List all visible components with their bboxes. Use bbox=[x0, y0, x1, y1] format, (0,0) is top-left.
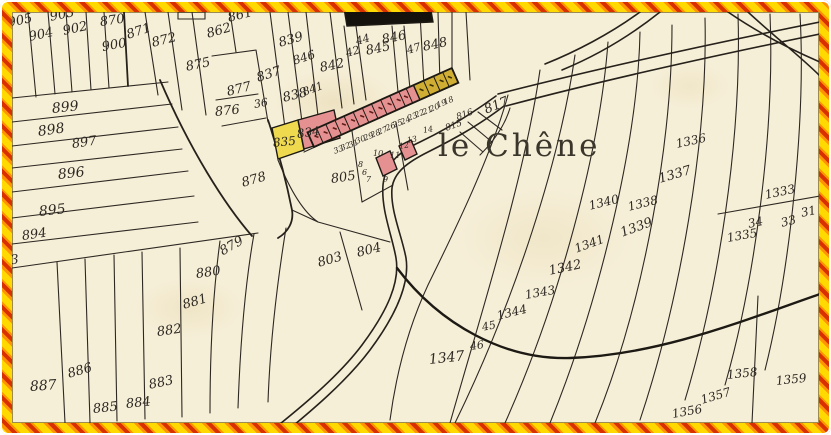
parcel-label: 11 bbox=[390, 152, 400, 160]
parcel-label: 882 bbox=[156, 323, 182, 339]
parcel-label: 36 bbox=[253, 97, 269, 110]
parcel-label: 805 bbox=[330, 170, 356, 186]
parcel-label: 1347 bbox=[428, 349, 465, 367]
parcel-label: 42 bbox=[344, 44, 360, 58]
map-paper: le Chêne 9059049039028709008718728758618… bbox=[12, 12, 819, 423]
parcel-label: 893 bbox=[12, 253, 19, 269]
major-boundaries-group bbox=[124, 12, 292, 238]
parcel-label: 876 bbox=[214, 103, 240, 119]
parcel-label: 880 bbox=[195, 265, 221, 281]
parcel-label: 896 bbox=[57, 165, 85, 182]
map-frame: le Chêne 9059049039028709008718728758618… bbox=[0, 0, 831, 435]
parcel-lines-left bbox=[12, 12, 268, 268]
parcel-label: 898 bbox=[37, 121, 65, 139]
parcel-label: 895 bbox=[38, 202, 66, 219]
parcel-label: 45 bbox=[481, 319, 497, 333]
parcel-label: 6 bbox=[362, 169, 367, 177]
parcel-label: 897 bbox=[71, 135, 97, 151]
parcel-label: 1359 bbox=[775, 372, 807, 387]
parcel-label: 31 bbox=[800, 204, 817, 219]
parcel-lines-group bbox=[12, 12, 819, 423]
parcel-label: 894 bbox=[21, 227, 47, 243]
parcel-label: 885 bbox=[92, 400, 118, 416]
cadastral-map-svg bbox=[12, 12, 819, 423]
parcel-label: 7 bbox=[366, 176, 371, 184]
parcel-label: 835 bbox=[272, 135, 296, 149]
parcel-label: 47 bbox=[405, 41, 421, 55]
boundary-lines bbox=[124, 12, 292, 238]
place-name-label: le Chêne bbox=[438, 128, 600, 164]
roads-group bbox=[270, 12, 819, 423]
parcel-label: 887 bbox=[30, 378, 58, 394]
parcel-label: 899 bbox=[51, 99, 79, 116]
parcel-label: 834 bbox=[296, 125, 320, 140]
parcel-label: 10 bbox=[373, 150, 383, 158]
parcel-label: 46 bbox=[469, 339, 484, 352]
parcel-label: 884 bbox=[125, 395, 151, 411]
parcel-label: 9 bbox=[383, 176, 388, 184]
parcel-label: 870 bbox=[99, 13, 125, 29]
parcel-label: 1358 bbox=[726, 366, 758, 381]
black-building bbox=[344, 12, 433, 26]
parcel-label: 33 bbox=[780, 213, 798, 228]
map-canvas: le Chêne 9059049039028709008718728758618… bbox=[12, 12, 819, 423]
